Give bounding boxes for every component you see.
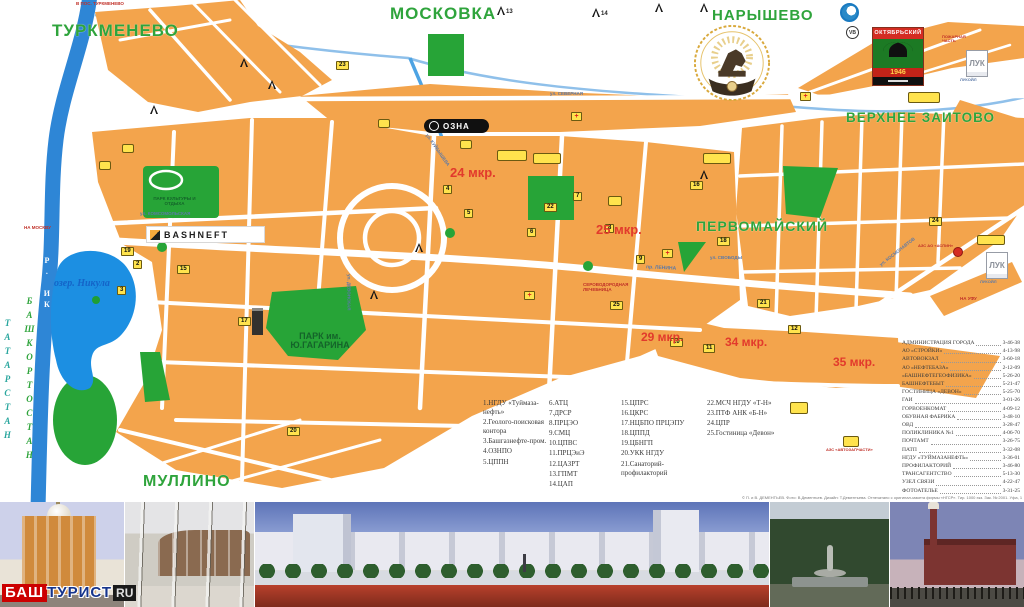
directory-phone: 5-13-30 [1003,470,1020,478]
directory-leader [941,362,1001,363]
directory-row: ПОЧТАМТ3-26-75 [902,437,1020,445]
map-callout-box [608,196,622,206]
ozna-icon [429,121,439,131]
directory-row: ПРОФИЛАКТОРИЙ3-46-80 [902,462,1020,470]
oil-derrick-icon [700,3,708,12]
medical-cross-marker: + [571,112,582,121]
lake-island [92,296,100,304]
directory-row: ГОРВОЕНКОМАТ4-09-12 [902,405,1020,413]
map-number-badge: 21 [757,299,770,308]
directory-name: НГДУ «ТУЙМАЗАНЕФТЬ» [902,454,968,462]
legend-item: 19.ЦБНГП [621,439,707,448]
directory-name: ПАТП [902,446,917,454]
city-map-page: ОКТЯБРЬСКИЙ 1946 BASHNEFT ОЗНА ЛУК ЛУК V… [0,0,1024,607]
oil-derrick-marker: 13 [497,6,513,15]
map-label: Р. ИК [42,256,50,311]
company-logo-icon [840,3,859,22]
legend-item: 16.ЦКРС [621,409,707,418]
directory-name: БАШНЕФТЕБЫТ [902,380,944,388]
directory-phone: 3-48-10 [1003,413,1020,421]
photo-central-square [255,502,770,607]
legend-item: 8.ПРЦЭО [549,419,621,428]
legend-item: 21.Санаторий-профилакторий [621,460,707,478]
directory-row: АВТОВОКЗАЛ3-60-18 [902,355,1020,363]
city-entrance-sign: ОКТЯБРЬСКИЙ 1946 [873,28,923,85]
map-label: ЛУКОЙЛ [980,280,997,284]
directory-name: ПОЧТАМТ [902,437,929,445]
map-callout-box [843,436,859,447]
map-label: ТУРКМЕНЕВО [52,22,179,40]
directory-leader [919,452,1001,453]
directory-row: НГДУ «ТУЙМАЗАНЕФТЬ»3-36-01 [902,454,1020,462]
bashturist-logo: БАШ ТУРИСТ RU [2,584,136,602]
brand-turist: ТУРИСТ [47,584,112,602]
map-label: В ПОС. ТУРКМЕНЕВО [76,2,124,7]
directory-leader [936,485,1000,486]
legend-item: 5.ЦППН [483,458,549,467]
photo-park-fountain [770,502,890,607]
directory-row: БАШНЕФТЕБЫТ5-21-47 [902,380,1020,388]
legend-item: 6.АТЦ [549,399,621,408]
medical-cross-marker: + [662,249,673,258]
directory-row: «БАШНЕФТЕГЕОФИЗИКА»5-26-20 [902,372,1020,380]
map-label: ул. СВОБОДЫ [710,256,742,261]
directory-name: «БАШНЕФТЕГЕОФИЗИКА» [902,372,972,380]
directory-leader [950,370,1000,371]
directory-phone: 3-46-80 [1003,462,1020,470]
directory-row: ФОТОАТЕЛЬЕ3-31-25 [902,487,1020,495]
map-label: 35 мкр. [833,356,875,369]
oil-derrick-marker [700,3,708,12]
ozna-wordmark: ОЗНА [443,122,470,131]
map-number-badge: 24 [929,217,942,226]
map-callout-box [99,161,111,170]
directory-name: ПРОФИЛАКТОРИЙ [902,462,951,470]
map-label: НА УФУ [960,297,977,302]
directory-phone: 5-26-20 [1003,372,1020,380]
directory-name: ОБУВНАЯ ФАБРИКА [902,413,955,421]
legend-item: 10.ЦПВС [549,439,621,448]
map-label: 24 мкр. [450,166,496,180]
map-number-badge: 15 [177,265,190,274]
legend-item: 3.Башгазнефте-пром. [483,437,549,446]
directory-row: ТРАНСАГЕНТСТВО5-13-30 [902,470,1020,478]
map-label: ПАРК им. Ю.ГАГАРИНА [280,332,360,351]
directory-row: ОВД3-28-47 [902,421,1020,429]
directory-row: АДМИНИСТРАЦИЯ ГОРОДА3-46-38 [902,339,1020,347]
directory-row: ГОСТИНИЦА «ДЕВОН»5-25-70 [902,388,1020,396]
map-label: ул. КОМСОМОЛЬСКАЯ [140,212,190,217]
map-label: ПЕРВОМАЙСКИЙ [696,219,828,234]
map-number-badge: 6 [527,228,536,237]
map-label: СЕРОВОДОРОДНАЯ ЛЕЧЕБНИЦА [583,283,635,292]
map-callout-box [908,92,940,103]
directory-leader [976,345,1000,346]
directory-name: АО «НЕФТЕБАЗА» [902,364,948,372]
map-callout-box [122,144,134,153]
oil-derrick-marker [370,290,378,299]
map-label: 29 мкр. [641,331,683,344]
directory-leader [964,394,1001,395]
directory-phone: 3-01-26 [1003,396,1020,404]
legend-item: 12.ЦАЗРТ [549,460,621,469]
map-label: МУЛЛИНО [143,474,231,491]
directory-name: ПОЛИКЛИНИКА №1 [902,429,954,437]
directory-name: УЗЕЛ СВЯЗИ [902,478,934,486]
legend-item: 4.ОЗНПО [483,447,549,456]
map-label: АЗС АО «АСПИН» [918,244,953,248]
directory-name: АДМИНИСТРАЦИЯ ГОРОДА [902,339,974,347]
map-number-badge: 16 [690,181,703,190]
directory-leader [940,493,1001,494]
legend-item: 11.ПРЦЭиЭ [549,449,621,458]
brand-bash: БАШ [2,584,47,602]
directory-name: АВТОВОКЗАЛ [902,355,939,363]
lake-shape [51,251,136,390]
legend-item: 23.ПТФ АНК «Б-Н» [707,409,783,418]
map-label: ВЕРХНЕЕ ЗАИТОВО [846,111,995,125]
oil-derrick-icon [240,58,248,67]
map-number-badge: 3 [117,286,126,295]
ozna-logo: ОЗНА [424,119,489,133]
map-label: ТАТАРСТАН [2,318,11,444]
map-label: ПАРК КУЛЬТУРЫ И ОТДЫХА [147,197,202,206]
map-callout-box [790,402,808,414]
map-number-badge: 22 [544,203,557,212]
map-number-badge: 18 [717,237,730,246]
directory-name: ГОСТИНИЦА «ДЕВОН» [902,388,962,396]
directory-name: ГАИ [902,396,913,404]
directory-leader [953,468,1000,469]
map-callout-box [533,153,561,164]
oil-derrick-marker [655,3,663,12]
map-number-badge: 20 [287,427,300,436]
directory-leader [970,460,1001,461]
directory-phone: 3-46-38 [1003,339,1020,347]
map-label: БАШКОРТОСТАН [24,296,33,464]
medical-cross-marker: + [524,291,535,300]
legend-column: 6.АТЦ7.ДРСР8.ПРЦЭО9.СМЦ10.ЦПВС11.ПРЦЭиЭ1… [549,399,621,490]
map-label: ЛУКОЙЛ [960,78,977,82]
legend-item: 9.СМЦ [549,429,621,438]
phone-directory: АДМИНИСТРАЦИЯ ГОРОДА3-46-38АО «СТРОЙКИ»4… [902,339,1020,495]
directory-leader [956,435,1001,436]
lukoil-logo-north: ЛУК [966,50,988,77]
oil-derrick-marker: 14 [592,8,608,17]
legend-item: 2.Геолого-поисковая контора [483,418,549,436]
bashneft-icon [150,230,160,240]
oil-derrick-icon [655,3,663,12]
legend-item: 24.ЦПР [707,419,783,428]
legend-item: 15.ЦПРС [621,399,707,408]
bashneft-logo: BASHNEFT [146,226,265,243]
directory-phone: 3-31-25 [1003,487,1020,495]
legend-column: 22.МСЧ НГДУ «Т-Н»23.ПТФ АНК «Б-Н»24.ЦПР2… [707,399,783,490]
oil-derrick-number: 14 [601,11,608,17]
directory-phone: 4-06-70 [1003,429,1020,437]
map-canvas: ОКТЯБРЬСКИЙ 1946 BASHNEFT ОЗНА ЛУК ЛУК V… [0,0,1024,502]
map-number-badge: 19 [121,247,134,256]
legend-item: 18.ЦППД [621,429,707,438]
gas-station-marker [953,247,963,257]
city-sign-year: 1946 [873,68,923,77]
directory-name: ТРАНСАГЕНТСТВО [902,470,952,478]
map-callout-box [378,119,390,128]
oil-derrick-marker [268,80,276,89]
legend-column: 1.НГДУ «Туймаза-нефть»2.Геолого-поискова… [483,399,549,490]
directory-leader [954,476,1001,477]
brand-ru: RU [113,585,136,601]
directory-row: ГАИ3-01-26 [902,396,1020,404]
map-label: НА МОСКВУ [24,226,51,231]
oil-derrick-icon [700,170,708,179]
oil-derrick-marker [700,170,708,179]
directory-row: АО «НЕФТЕБАЗА»2-12-09 [902,364,1020,372]
directory-phone: 5-21-47 [1003,380,1020,388]
directory-phone: 3-36-01 [1003,454,1020,462]
map-label: озер. Никула [54,279,110,290]
bashneft-wordmark: BASHNEFT [164,230,229,240]
legend-item: 22.МСЧ НГДУ «Т-Н» [707,399,783,408]
map-label: ул. СЕВЕРНАЯ [550,92,583,97]
legend-item: 20.УКК НГДУ [621,449,707,458]
directory-name: ФОТОАТЕЛЬЕ [902,487,938,495]
directory-phone: 4-22-47 [1003,478,1020,486]
directory-phone: 4-13-98 [1003,347,1020,355]
directory-row: АО «СТРОЙКИ»4-13-98 [902,347,1020,355]
directory-phone: 3-32-08 [1003,446,1020,454]
highrise-building-icon [252,308,263,335]
map-label: ул. ДЕВОНСКАЯ [346,274,351,310]
directory-leader [931,444,1001,445]
map-number-badge: 7 [573,192,582,201]
oil-derrick-number: 13 [506,9,513,15]
map-label: ПОЖАРНАЯ ЧАСТЬ [942,35,978,43]
directory-leader [915,427,1000,428]
copyright-line: © П. и В. ДЕМЕНТЬЕВ. Фото: В.Дементьев. … [742,495,1022,500]
oil-derrick-icon [415,243,423,252]
oil-derrick-icon [592,8,600,17]
map-number-badge: 12 [788,325,801,334]
map-number-badge: 4 [443,185,452,194]
legend-item: 17.НЦБПО ПРЦЭПУ [621,419,707,428]
directory-phone: 4-09-12 [1003,405,1020,413]
map-callout-box [703,153,731,164]
map-callout-box [977,235,1005,245]
directory-leader [915,403,1001,404]
oil-derrick-marker [240,58,248,67]
city-sign-base [873,77,923,85]
map-label: 25 мкр. [596,223,642,237]
derrick-gate-icon [883,42,913,63]
legend-item: 13.ГПМТ [549,470,621,479]
directory-row: ПОЛИКЛИНИКА №14-06-70 [902,429,1020,437]
map-callout-box [497,150,527,161]
legend-item: 1.НГДУ «Туймаза-нефть» [483,399,549,417]
directory-row: ОБУВНАЯ ФАБРИКА3-48-10 [902,413,1020,421]
oil-derrick-icon [497,6,505,15]
map-number-badge: 11 [703,344,715,353]
legend-item: 25.Гостиница «Девон» [707,429,783,438]
legend-item: 7.ДРСР [549,409,621,418]
oil-derrick-icon [370,290,378,299]
photo-winter-manor [125,502,255,607]
map-label: АЗС «АВТОЗАПЧАСТИ» [826,448,873,452]
vb-logo-icon: VB [846,26,859,39]
city-sign-title: ОКТЯБРЬСКИЙ [873,28,923,39]
directory-leader [946,386,1000,387]
map-number-badge: 25 [610,301,623,310]
directory-phone: 2-12-09 [1003,364,1020,372]
bashkortostan-coat-of-arms [693,24,771,102]
oil-derrick-icon [150,105,158,114]
oil-derrick-marker [415,243,423,252]
directory-leader [974,378,1001,379]
map-number-badge: 23 [336,61,349,70]
city-sign-emblem [873,39,923,68]
directory-row: УЗЕЛ СВЯЗИ4-22-47 [902,478,1020,486]
oil-derrick-marker [150,105,158,114]
directory-name: ОВД [902,421,913,429]
directory-name: ГОРВОЕНКОМАТ [902,405,946,413]
directory-leader [944,353,1000,354]
map-label: 34 мкр. [725,336,767,349]
map-label: НАРЫШЕВО [712,8,814,24]
directory-phone: 5-25-70 [1003,388,1020,396]
directory-phone: 3-26-75 [1003,437,1020,445]
directory-phone: 3-28-47 [1003,421,1020,429]
legend-item: 14.ЦАП [549,480,621,489]
map-callout-box [460,140,472,149]
directory-name: АО «СТРОЙКИ» [902,347,942,355]
directory-leader [948,411,1000,412]
directory-phone: 3-60-18 [1003,355,1020,363]
photo-mosque [890,502,1024,607]
oil-derrick-icon [268,80,276,89]
directory-leader [957,419,1000,420]
directory-row: ПАТП3-32-08 [902,446,1020,454]
map-legend: 1.НГДУ «Туймаза-нефть»2.Геолого-поискова… [483,399,783,490]
map-number-badge: 9 [636,255,645,264]
map-number-badge: 5 [464,209,473,218]
map-number-badge: 17 [238,317,251,326]
photo-strip [0,502,1024,607]
lukoil-logo-east: ЛУК [986,252,1008,279]
legend-column: 15.ЦПРС16.ЦКРС17.НЦБПО ПРЦЭПУ18.ЦППД19.Ц… [621,399,707,490]
map-number-badge: 2 [133,260,142,269]
map-label: МОСКОВКА [390,5,496,23]
medical-cross-marker: + [800,92,811,101]
